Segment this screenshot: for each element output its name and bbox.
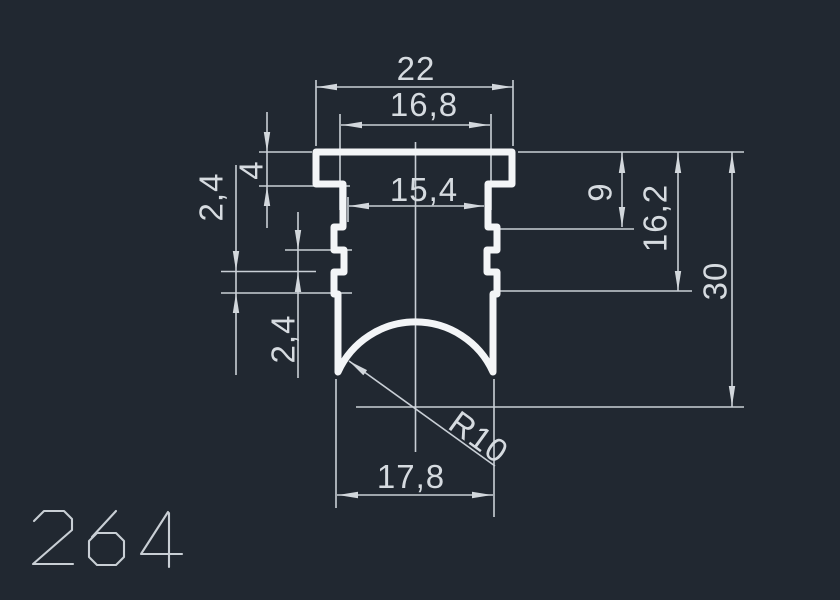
dim-flange-height: 4	[233, 112, 351, 228]
arrowhead	[349, 203, 369, 209]
dim-depth-last-rib: 16,2	[500, 152, 692, 291]
dim-flange-inner-width-label: 16,8	[390, 86, 458, 123]
dim-arc-radius-label: R10	[442, 403, 515, 470]
arrowhead	[295, 230, 301, 250]
arrowhead	[492, 84, 512, 90]
arrowhead	[469, 122, 489, 128]
arrowhead	[338, 492, 358, 498]
arrowhead	[675, 153, 681, 173]
dim-arc-radius: R10	[349, 361, 516, 471]
dim-depth-last-rib-label: 16,2	[637, 184, 674, 252]
arrowhead	[619, 153, 625, 173]
arrowhead	[295, 272, 301, 292]
dim-rib-step-lower-label: 2,4	[265, 315, 302, 364]
arrowhead	[342, 122, 362, 128]
dim-depth-first-rib: 9	[500, 152, 634, 229]
arrowhead	[233, 293, 239, 313]
dim-leg-span-label: 17,8	[377, 458, 445, 495]
arrowhead	[264, 186, 270, 206]
glyph-4	[141, 512, 182, 567]
dim-flange-height-label: 4	[233, 160, 270, 179]
arrowhead	[349, 361, 367, 375]
arrowhead	[729, 386, 735, 406]
dim-rib-step-upper-label: 2,4	[193, 173, 230, 222]
arrowhead	[729, 153, 735, 173]
dim-overall-height: 30	[697, 152, 736, 407]
dim-overall-height-label: 30	[697, 262, 734, 301]
dim-overall-width-label: 22	[397, 50, 436, 87]
arrowhead	[464, 203, 484, 209]
arrowhead	[264, 132, 270, 152]
glyph-6	[89, 511, 124, 565]
dim-neck-width-label: 15,4	[390, 171, 458, 208]
arrowhead	[233, 251, 239, 271]
dim-neck-width: 15,4	[348, 171, 486, 222]
drawing-canvas[interactable]: 22 16,8 15,4 4 2,4 2,4	[0, 0, 840, 600]
arrowhead	[619, 207, 625, 227]
arrowhead	[472, 492, 492, 498]
dim-depth-first-rib-label: 9	[582, 182, 619, 201]
arrowhead	[317, 84, 337, 90]
arrowhead	[675, 271, 681, 291]
